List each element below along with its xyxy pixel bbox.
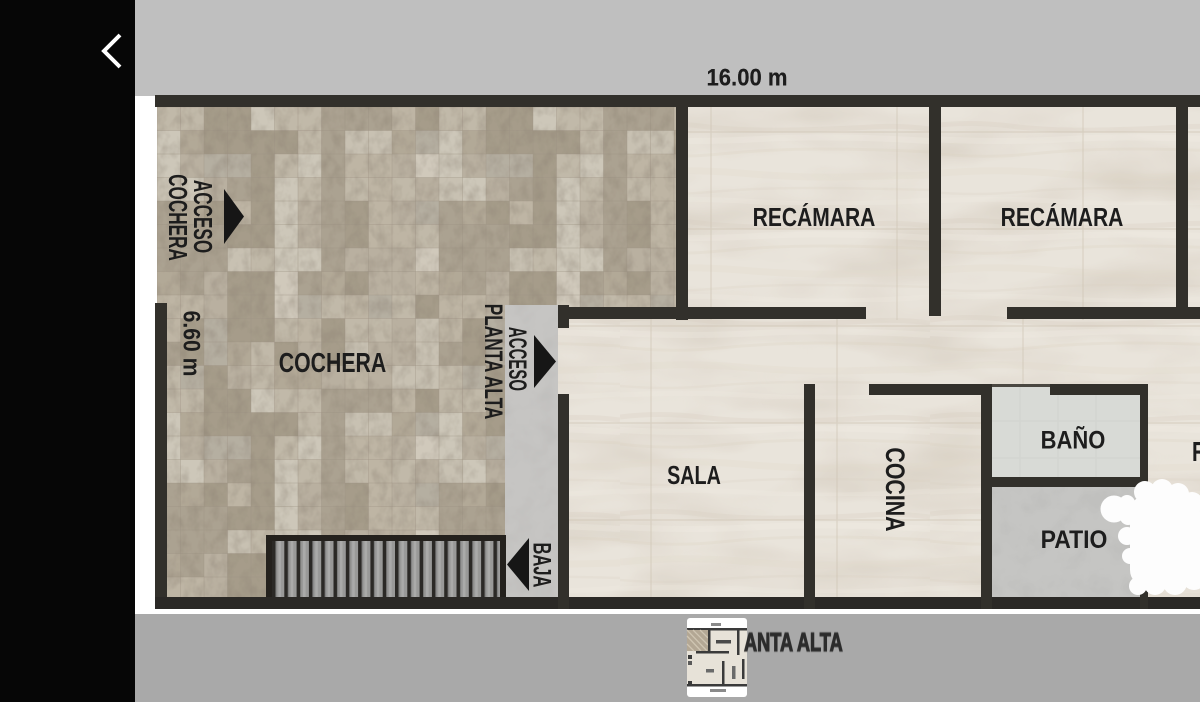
svg-text:BAÑO: BAÑO [1041,425,1106,454]
svg-text:ANTA ALTA: ANTA ALTA [744,628,843,657]
svg-text:PATIO: PATIO [1041,526,1108,554]
svg-text:16.00 m: 16.00 m [707,64,788,91]
svg-text:SALA: SALA [667,460,721,489]
svg-text:RECÁMARA: RECÁMARA [1001,202,1124,233]
svg-text:BAJA: BAJA [528,543,555,588]
svg-text:ACCESO: ACCESO [503,327,531,391]
svg-text:6.60 m: 6.60 m [178,311,205,377]
svg-text:COCHERA: COCHERA [163,174,193,261]
svg-text:RECÁMARA: RECÁMARA [753,202,876,233]
svg-text:R: R [1192,437,1200,468]
svg-text:COCHERA: COCHERA [279,347,387,379]
svg-text:COCINA: COCINA [879,447,909,531]
